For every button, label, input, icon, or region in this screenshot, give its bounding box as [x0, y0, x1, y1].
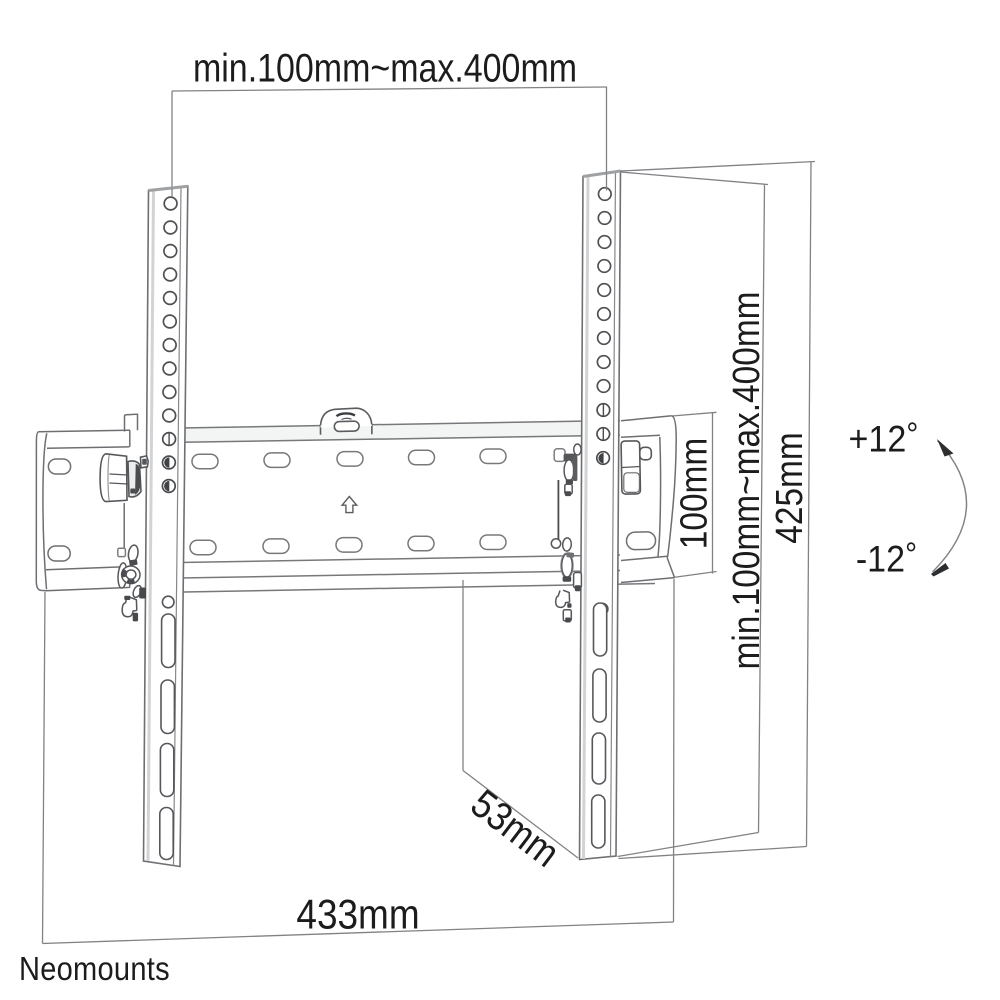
svg-text:min.100mm~max.400mm: min.100mm~max.400mm — [725, 291, 767, 669]
svg-text:433mm: 433mm — [296, 891, 419, 938]
svg-text:min.100mm~max.400mm: min.100mm~max.400mm — [193, 46, 577, 90]
svg-text:425mm: 425mm — [768, 432, 810, 543]
svg-text:100mm: 100mm — [673, 438, 715, 549]
svg-text:-12°: -12° — [856, 535, 917, 580]
svg-text:+12°: +12° — [849, 415, 919, 460]
svg-text:53mm: 53mm — [463, 781, 568, 876]
svg-text:Neomounts: Neomounts — [19, 950, 170, 987]
